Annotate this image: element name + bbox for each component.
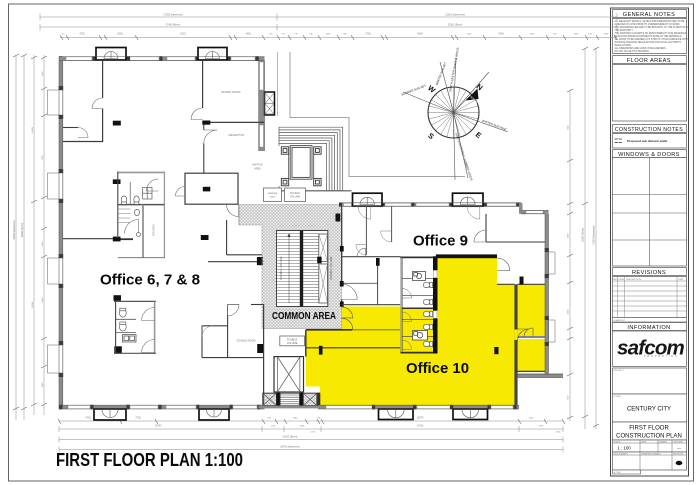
svg-text:DRAWN BY: DRAWN BY bbox=[614, 319, 626, 322]
svg-text:4730: 4730 bbox=[85, 417, 91, 420]
svg-text:CHECKED ON SITE PRIOR TO COMME: CHECKED ON SITE PRIOR TO COMMENCEMENT OF… bbox=[615, 24, 681, 26]
svg-text:CHECKED: CHECKED bbox=[673, 442, 684, 444]
svg-text:FIRST FLOOR: FIRST FLOOR bbox=[629, 426, 669, 432]
svg-text:DESCRIPTION: DESCRIPTION bbox=[626, 279, 641, 281]
svg-text:DRAWING NUMBER: DRAWING NUMBER bbox=[641, 453, 661, 456]
svg-text:16075: 16075 bbox=[417, 417, 424, 420]
svg-text:—: — bbox=[677, 445, 681, 450]
svg-text:THE ARCHITECT ACCEPTS NO RESPO: THE ARCHITECT ACCEPTS NO RESPONSIBILITY … bbox=[615, 32, 687, 35]
svg-text:CENTURY CITY: CENTURY CITY bbox=[627, 407, 671, 413]
svg-text:17460 (Burm): 17460 (Burm) bbox=[166, 24, 181, 27]
svg-text:8120: 8120 bbox=[180, 33, 186, 36]
svg-text:17150: 17150 bbox=[417, 425, 424, 428]
svg-text:DOUBLE VOLUME: DOUBLE VOLUME bbox=[329, 256, 333, 279]
svg-text:COMMON AREA: COMMON AREA bbox=[272, 310, 336, 322]
svg-text:WAITING: WAITING bbox=[252, 164, 263, 167]
svg-text:REVISION: REVISION bbox=[673, 454, 683, 456]
svg-text:DRN: DRN bbox=[679, 279, 684, 281]
svg-text:ALL WORK TO BE CARRIED OUT STR: ALL WORK TO BE CARRIED OUT STRICTLY IN A… bbox=[615, 38, 689, 41]
svg-text:DATE: DATE bbox=[641, 441, 647, 444]
svg-text:AREA: AREA bbox=[254, 167, 261, 170]
svg-text:20641 (basement): 20641 (basement) bbox=[280, 446, 300, 449]
svg-text:1 : 100: 1 : 100 bbox=[617, 446, 631, 451]
svg-text:CONSTRUCTION PLAN: CONSTRUCTION PLAN bbox=[616, 434, 682, 440]
svg-text:CONSTRUCTION NOTES: CONSTRUCTION NOTES bbox=[615, 127, 683, 133]
svg-text:VOLUME: VOLUME bbox=[290, 196, 301, 199]
svg-text:ALL RELEVANT DETAILS, LEVELS A: ALL RELEVANT DETAILS, LEVELS AND DIMENSI… bbox=[615, 20, 685, 23]
svg-text:REGULATIONS.: REGULATIONS. bbox=[615, 44, 632, 47]
svg-text:ANY DISCREPANCIES ARE TO BE BR: ANY DISCREPANCIES ARE TO BE BROUGHT TO T… bbox=[615, 26, 690, 29]
svg-text:NOTES: NOTES bbox=[614, 472, 622, 474]
svg-text:SCALE: SCALE bbox=[614, 441, 621, 444]
svg-text:2730: 2730 bbox=[135, 417, 141, 420]
svg-text:WINDOWS & DOORS: WINDOWS & DOORS bbox=[618, 152, 680, 158]
svg-text:Office 6, 7 & 8: Office 6, 7 & 8 bbox=[100, 272, 200, 289]
svg-text:ALL DIMENSIONS ARE GIVEN IN MI: ALL DIMENSIONS ARE GIVEN IN MILLIMETERS. bbox=[615, 47, 667, 50]
svg-text:1400: 1400 bbox=[245, 33, 251, 36]
svg-text:2600: 2600 bbox=[117, 33, 123, 36]
svg-text:4730: 4730 bbox=[79, 33, 85, 36]
svg-text:cleaning: cleaning bbox=[268, 192, 278, 195]
svg-text:DRAWN: DRAWN bbox=[659, 441, 667, 444]
svg-text:DOUBLE: DOUBLE bbox=[290, 192, 300, 195]
svg-text:BOARD ROOM: BOARD ROOM bbox=[222, 90, 241, 94]
svg-text:THE ARCHITECT.: THE ARCHITECT. bbox=[615, 29, 634, 32]
svg-text:FLOOR AREAS: FLOOR AREAS bbox=[627, 58, 671, 64]
svg-text:Proposed sub division walls: Proposed sub division walls bbox=[627, 139, 668, 143]
svg-text:PROPERTIES: PROPERTIES bbox=[644, 354, 679, 358]
svg-text:DO NOT SCALE THIS DRAWING.: DO NOT SCALE THIS DRAWING. bbox=[615, 50, 651, 53]
svg-text:NATIONAL BUILDING REGULATIONS: NATIONAL BUILDING REGULATIONS AND LOCAL … bbox=[615, 41, 682, 44]
svg-text:6600: 6600 bbox=[417, 33, 423, 36]
svg-text:RECEPTION: RECEPTION bbox=[229, 133, 245, 137]
svg-text:2400: 2400 bbox=[498, 33, 504, 36]
svg-text:13019 (basement): 13019 (basement) bbox=[593, 225, 596, 245]
svg-text:REVISIONS: REVISIONS bbox=[632, 270, 666, 276]
svg-text:KITCHEN: KITCHEN bbox=[152, 224, 156, 236]
svg-text:30000 (Burm): 30000 (Burm) bbox=[21, 222, 24, 237]
svg-text:14980: 14980 bbox=[32, 301, 34, 308]
svg-text:DOUBLE ROOM: DOUBLE ROOM bbox=[237, 340, 256, 343]
svg-text:FIRST FLOOR PLAN 1:100: FIRST FLOOR PLAN 1:100 bbox=[56, 449, 243, 470]
svg-text:VOLUME: VOLUME bbox=[287, 342, 298, 345]
svg-text:GENERAL NOTES: GENERAL NOTES bbox=[623, 12, 676, 18]
svg-text:CLIENT: CLIENT bbox=[614, 396, 622, 398]
svg-text:Office 10: Office 10 bbox=[406, 360, 469, 377]
svg-text:INFORMATION: INFORMATION bbox=[627, 325, 670, 331]
svg-text:21901 (Burm): 21901 (Burm) bbox=[448, 24, 463, 27]
svg-text:DOUBLE VOLUME: DOUBLE VOLUME bbox=[279, 256, 283, 279]
svg-text:2700: 2700 bbox=[365, 33, 371, 36]
svg-text:REV: REV bbox=[613, 279, 618, 281]
svg-text:21901 (basement): 21901 (basement) bbox=[445, 14, 465, 17]
svg-text:17500 (basement): 17500 (basement) bbox=[163, 14, 183, 17]
svg-text:DATE: DATE bbox=[619, 278, 625, 281]
svg-text:PROJECT: PROJECT bbox=[614, 370, 625, 372]
svg-text:13000 (Burm): 13000 (Burm) bbox=[582, 227, 585, 242]
svg-text:DOUBLE: DOUBLE bbox=[287, 338, 298, 341]
svg-text:30000 (basement): 30000 (basement) bbox=[13, 220, 16, 240]
svg-text:20411 (Burm): 20411 (Burm) bbox=[283, 436, 298, 439]
svg-text:14695: 14695 bbox=[32, 126, 34, 133]
svg-text:room: room bbox=[270, 196, 276, 199]
svg-text:FILE NUMBER: FILE NUMBER bbox=[614, 454, 628, 456]
svg-text:RESULTING FROM ADJUSTMENTS DON: RESULTING FROM ADJUSTMENTS DONE AT THE D… bbox=[615, 35, 683, 38]
svg-text:17940: 17940 bbox=[155, 425, 162, 428]
svg-text:Office 9: Office 9 bbox=[413, 234, 468, 250]
